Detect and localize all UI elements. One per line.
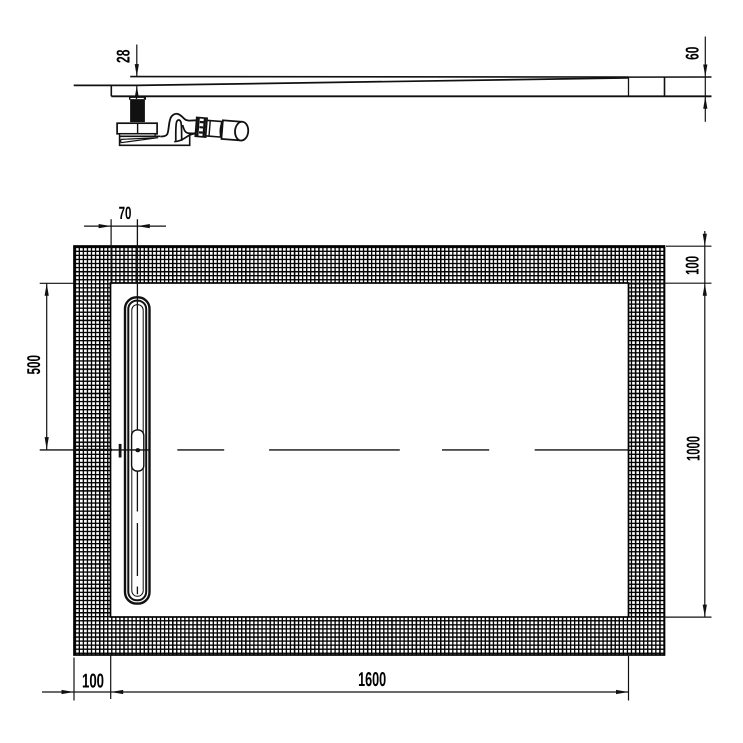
svg-text:100: 100 <box>682 256 703 275</box>
svg-text:60: 60 <box>681 47 702 60</box>
svg-text:28: 28 <box>113 50 134 64</box>
svg-text:70: 70 <box>119 203 132 223</box>
svg-text:1600: 1600 <box>358 669 386 691</box>
svg-text:100: 100 <box>82 670 104 692</box>
svg-text:1000: 1000 <box>682 436 703 461</box>
svg-text:500: 500 <box>23 355 44 375</box>
